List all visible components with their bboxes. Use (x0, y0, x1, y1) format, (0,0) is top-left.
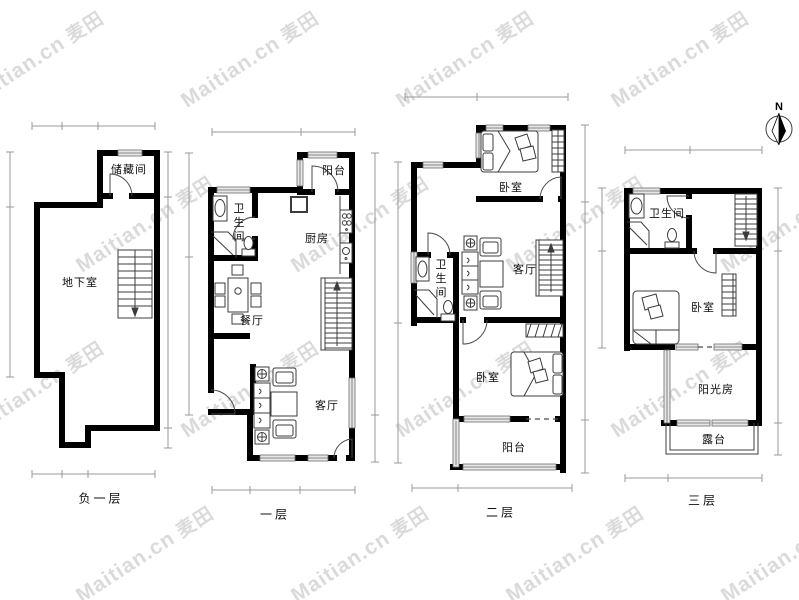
floor3-wardrobe (722, 274, 736, 316)
floor-basement-drawing (6, 122, 172, 478)
room-label-f1-bathroom: 卫生间 (233, 202, 246, 244)
floor3-bathroom-fixtures (627, 194, 679, 248)
room-label-f1-living: 客厅 (315, 397, 339, 413)
floor-label-3: 三层 (688, 492, 718, 509)
compass (766, 113, 792, 145)
room-label-f3-bathroom: 卫生间 (649, 205, 685, 221)
room-label-f2-balcony: 阳台 (502, 439, 526, 455)
room-label-basement: 地下室 (62, 274, 98, 290)
floor2-stairs (536, 240, 563, 296)
room-label-f2-bedroom2: 卧室 (476, 369, 500, 385)
floor2-bed-second (511, 352, 563, 396)
room-label-f3-sunroom: 阳光房 (698, 381, 734, 397)
room-label-f3-bedroom: 卧室 (691, 299, 715, 315)
floor2-wardrobe-second (526, 324, 563, 337)
room-label-f2-bathroom: 卫生间 (435, 258, 448, 300)
compass-north-label: N (775, 101, 783, 113)
room-label-f1-dining: 餐厅 (240, 312, 264, 328)
floor1-stairs (321, 278, 352, 350)
room-label-f3-terrace: 露台 (702, 431, 726, 447)
floorplan-canvas: Maitian.cn 麦田Maitian.cn 麦田Maitian.cn 麦田M… (0, 0, 799, 600)
room-label-f1-kitchen: 厨房 (305, 230, 329, 246)
floor-2-drawing (394, 93, 589, 492)
floor-label-1: 一层 (260, 506, 290, 523)
floor1-sofa-set (254, 367, 297, 444)
floor3-bed (633, 291, 679, 344)
floorplan-drawing (0, 0, 799, 600)
room-label-f1-balcony: 阳台 (322, 162, 346, 178)
room-label-storage: 储藏间 (111, 161, 147, 177)
basement-storage-door (110, 174, 132, 196)
basement-stairs (118, 250, 152, 318)
floor3-stairs (735, 194, 757, 246)
floor2-wardrobe-main (552, 130, 564, 172)
floor-3-drawing (598, 146, 782, 482)
floor-label-basement: 负一层 (78, 490, 123, 507)
room-label-f2-bedroom1: 卧室 (499, 179, 523, 195)
floor2-sofa-set (462, 236, 503, 310)
floor-label-2: 二层 (486, 504, 516, 521)
floor2-bed-main (481, 131, 538, 172)
room-label-f2-living: 客厅 (513, 261, 537, 277)
floor-1-drawing (185, 128, 379, 494)
